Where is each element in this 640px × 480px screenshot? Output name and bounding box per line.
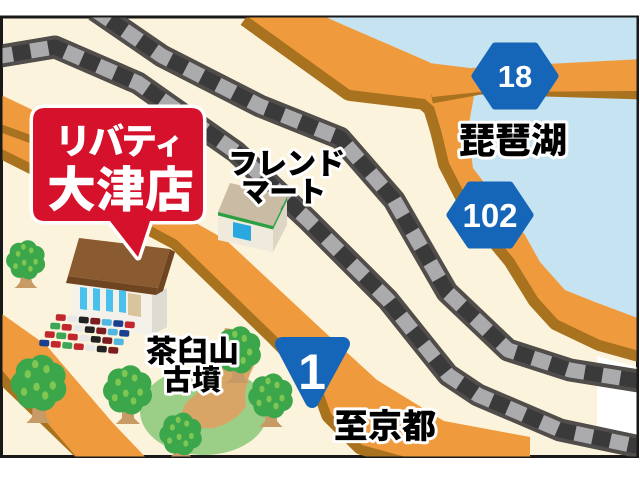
svg-text:102: 102 bbox=[462, 197, 517, 234]
svg-text:1: 1 bbox=[298, 344, 326, 400]
svg-text:18: 18 bbox=[498, 59, 532, 94]
